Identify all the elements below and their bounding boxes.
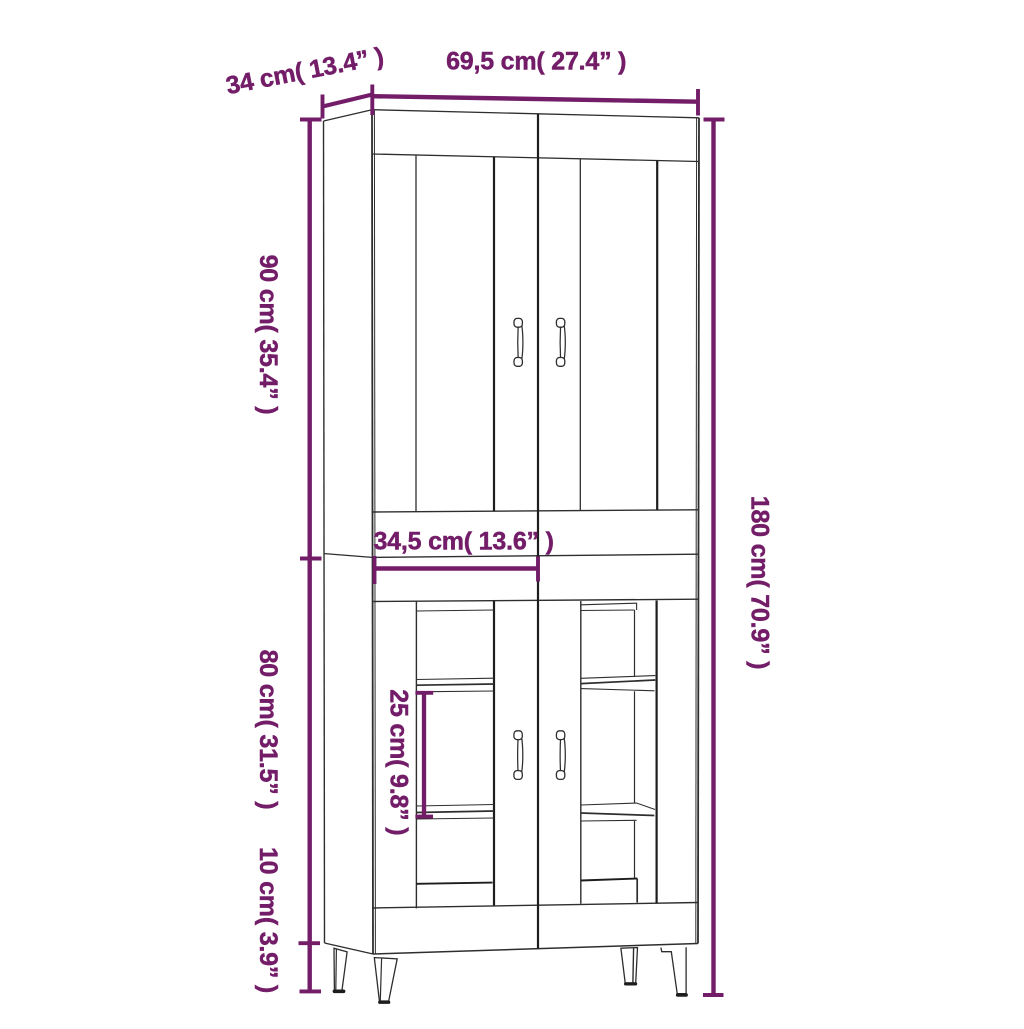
svg-text:180 cm( 70.9” ): 180 cm( 70.9” ) <box>746 496 774 670</box>
svg-text:69,5 cm( 27.4” ): 69,5 cm( 27.4” ) <box>446 47 626 75</box>
svg-text:10 cm( 3.9” ): 10 cm( 3.9” ) <box>254 847 282 993</box>
svg-text:90 cm( 35.4” ): 90 cm( 35.4” ) <box>254 255 282 415</box>
svg-text:34,5 cm( 13.6” ): 34,5 cm( 13.6” ) <box>373 527 553 555</box>
svg-text:25 cm( 9.8” ): 25 cm( 9.8” ) <box>385 689 413 835</box>
svg-text:80 cm( 31.5” ): 80 cm( 31.5” ) <box>254 650 282 810</box>
svg-text:34 cm( 13.4” ): 34 cm( 13.4” ) <box>224 42 386 100</box>
